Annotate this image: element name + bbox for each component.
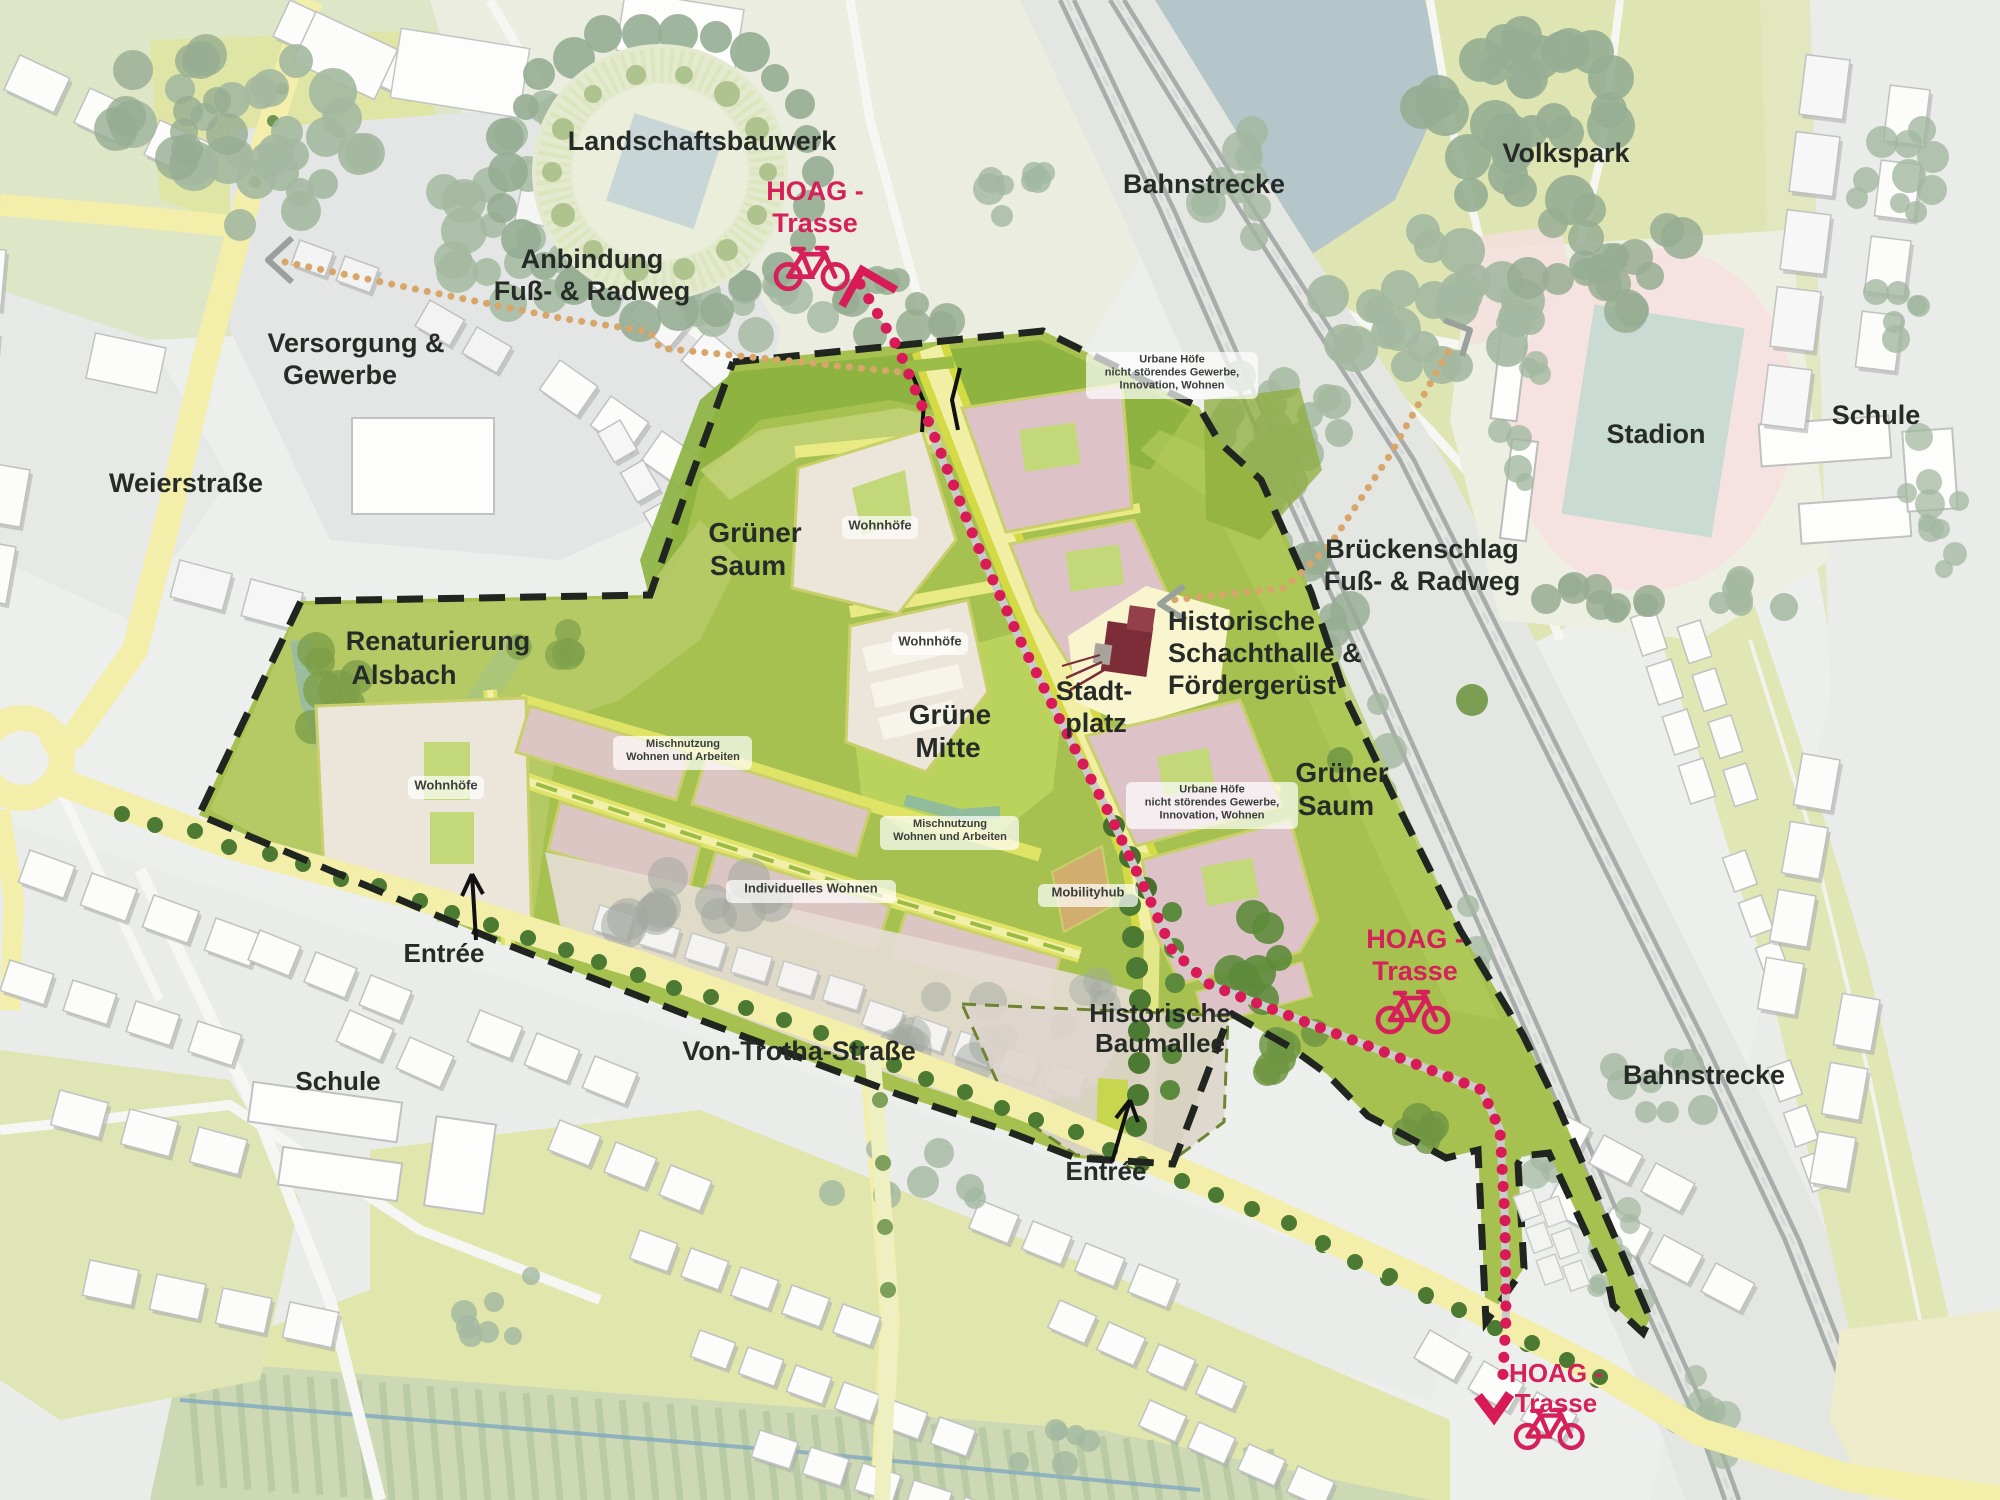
svg-text:Wohnhöfe: Wohnhöfe (898, 634, 961, 649)
svg-text:nicht störendes Gewerbe,: nicht störendes Gewerbe, (1145, 797, 1279, 809)
svg-text:Historische: Historische (1168, 606, 1315, 636)
svg-text:HOAG -: HOAG - (766, 176, 864, 206)
svg-text:Trasse: Trasse (1372, 956, 1458, 986)
svg-text:Wohnen und Arbeiten: Wohnen und Arbeiten (893, 831, 1007, 843)
svg-text:Urbane Höfe: Urbane Höfe (1179, 784, 1244, 796)
svg-text:Individuelles Wohnen: Individuelles Wohnen (744, 881, 877, 896)
svg-text:Weierstraße: Weierstraße (109, 468, 263, 498)
svg-text:Grüner: Grüner (708, 517, 801, 548)
svg-text:Fuß- & Radweg: Fuß- & Radweg (494, 276, 691, 306)
svg-text:Baumallee: Baumallee (1095, 1028, 1225, 1058)
svg-text:Saum: Saum (1298, 790, 1374, 821)
svg-text:platz: platz (1065, 708, 1127, 738)
svg-text:Schule: Schule (295, 1066, 380, 1096)
svg-text:Grüner: Grüner (1295, 757, 1388, 788)
svg-text:Trasse: Trasse (1515, 1388, 1597, 1418)
svg-text:Mobilityhub: Mobilityhub (1052, 885, 1125, 900)
svg-text:Historische: Historische (1089, 998, 1231, 1028)
svg-text:Stadt-: Stadt- (1056, 676, 1133, 706)
svg-text:Trasse: Trasse (772, 208, 858, 238)
svg-text:Renaturierung: Renaturierung (346, 626, 531, 656)
svg-text:Brückenschlag: Brückenschlag (1325, 534, 1519, 564)
svg-text:Grüne: Grüne (909, 699, 991, 730)
svg-text:HOAG -: HOAG - (1509, 1358, 1603, 1388)
svg-text:Entrée: Entrée (404, 938, 485, 968)
svg-text:Wohnen und Arbeiten: Wohnen und Arbeiten (626, 751, 740, 763)
svg-text:Mischnutzung: Mischnutzung (913, 818, 987, 830)
svg-text:Urbane Höfe: Urbane Höfe (1139, 354, 1204, 366)
svg-text:Gewerbe: Gewerbe (283, 360, 397, 390)
svg-text:Stadion: Stadion (1607, 419, 1706, 449)
svg-text:Saum: Saum (710, 550, 786, 581)
svg-text:Schachthalle &: Schachthalle & (1168, 638, 1362, 668)
svg-text:Innovation, Wohnen: Innovation, Wohnen (1120, 380, 1225, 392)
svg-text:Volkspark: Volkspark (1502, 138, 1630, 168)
svg-text:Versorgung &: Versorgung & (267, 328, 444, 358)
svg-text:Innovation, Wohnen: Innovation, Wohnen (1160, 810, 1265, 822)
svg-text:Bahnstrecke: Bahnstrecke (1623, 1060, 1785, 1090)
svg-text:Alsbach: Alsbach (351, 660, 456, 690)
svg-text:Von-Trotha-Straße: Von-Trotha-Straße (682, 1036, 916, 1066)
svg-text:Schule: Schule (1832, 400, 1921, 430)
svg-text:Wohnhöfe: Wohnhöfe (848, 518, 911, 533)
svg-text:Entrée: Entrée (1066, 1156, 1147, 1186)
svg-text:Anbindung: Anbindung (521, 244, 663, 274)
svg-text:Wohnhöfe: Wohnhöfe (414, 778, 477, 793)
svg-text:Fuß- & Radweg: Fuß- & Radweg (1324, 566, 1521, 596)
svg-text:Mischnutzung: Mischnutzung (646, 738, 720, 750)
svg-text:HOAG -: HOAG - (1366, 924, 1464, 954)
svg-text:Landschaftsbauwerk: Landschaftsbauwerk (568, 126, 838, 156)
svg-text:Bahnstrecke: Bahnstrecke (1123, 169, 1285, 199)
svg-text:nicht störendes Gewerbe,: nicht störendes Gewerbe, (1105, 367, 1239, 379)
svg-text:Fördergerüst: Fördergerüst (1168, 670, 1336, 700)
svg-text:Mitte: Mitte (915, 732, 980, 763)
